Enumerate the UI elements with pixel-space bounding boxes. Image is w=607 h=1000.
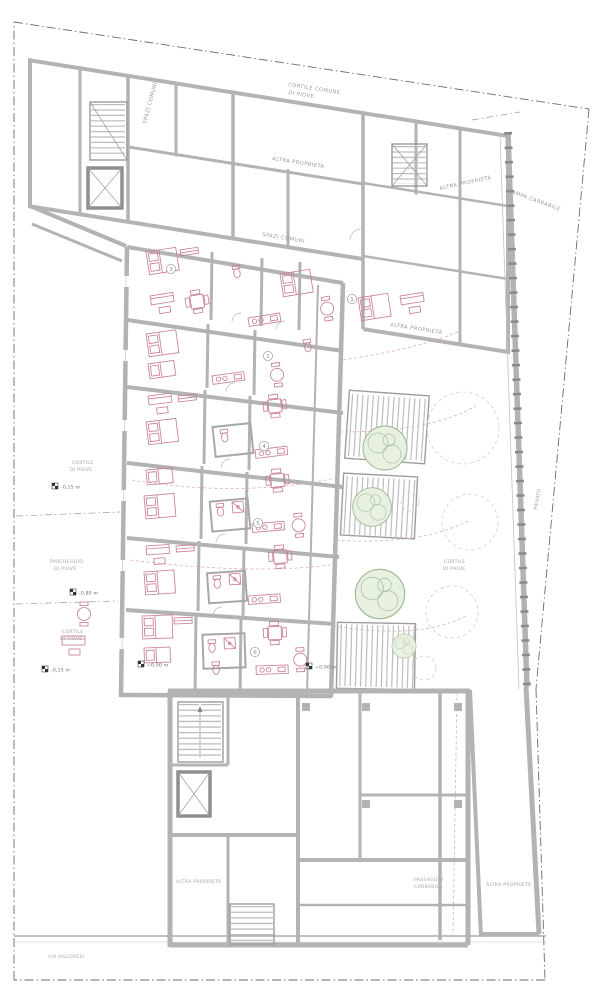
svg-text:6: 6 [253,650,257,656]
bottom-building-walls [168,691,470,947]
level-marker: -0,15 m [52,483,81,491]
label-via-villoresi: VIA VILLORESI [48,954,84,960]
right-slant-wall [500,132,527,689]
label-spazi-comuni-vertical: SPAZI COMUNI [142,81,159,124]
svg-text:-0,15 m: -0,15 m [51,668,71,674]
svg-text:-0,15 m: -0,15 m [61,485,81,491]
stair-top-left [90,102,127,160]
label-cortile-right-line2: DI PIOVE [443,566,465,572]
label-passaggio-line1: PASSAGGIO [414,877,443,883]
level-marker: -0,15 m [42,666,71,674]
elevator-bottom-left [178,772,210,816]
label-cortile-left1-line1: CORTILE [72,460,93,466]
label-privato: PRIVATO [533,488,543,510]
svg-text:+0,90 m: +0,90 m [315,665,337,671]
unit-badge: 5 [253,518,262,527]
label-passaggio-line2: CARRABILE [414,884,442,890]
svg-text:-0,80 m: -0,80 m [79,591,99,597]
label-altra-proprieta-top: ALTRA PROPRIETÀ [272,155,325,170]
label-cortile-right-line1: CORTILE [444,559,465,565]
svg-text:3: 3 [169,267,173,273]
unit-badge: 6 [250,647,259,656]
svg-text:1: 1 [350,297,354,303]
stair-bottom-south [230,904,274,944]
label-cortile-left2-line1: CORTILE [62,629,83,635]
right-lower-building [470,687,539,937]
label-altra-proprieta-topright: ALTRA PROPRIETÀ [439,174,492,192]
label-parcheggio-line1: PARCHEGGIO [50,559,83,565]
elevator-top-left [88,168,122,208]
label-altra-proprieta-bottomleft: ALTRA PROPRIETÀ [176,878,222,885]
stair-top-right [392,144,427,186]
svg-text:+0,90 m: +0,90 m [147,663,169,669]
level-markers: -0,15 m -0,80 m -0,15 m +0,90 m +0,90 m [42,483,337,674]
floor-plan-svg: 1 2 3 4 5 6 -0,15 m -0,80 m -0,15 m +0,9… [0,0,607,1000]
label-cortile-left2-line2: DI PIOVE [60,636,82,642]
unit-badge: 1 [347,294,356,303]
unit-badge: 3 [166,264,175,273]
unit-badge: 4 [259,441,268,450]
stair-bottom-left [178,702,223,762]
level-marker: -0,80 m [70,589,99,597]
drawing-sheet: 1 2 3 4 5 6 -0,15 m -0,80 m -0,15 m +0,9… [0,0,607,1000]
label-rampa-carrabile: RAMPA CARRABILE [507,188,561,212]
label-altra-proprieta-bottomright: ALTRA PROPRIETÀ [486,881,532,888]
unit-badge: 2 [263,351,272,360]
svg-text:2: 2 [266,354,270,360]
svg-text:5: 5 [256,521,260,527]
label-parcheggio-line2: DI PIOVE [54,566,76,572]
label-cortile-left1-line2: DI PIOVE [70,467,92,473]
svg-text:4: 4 [262,444,266,450]
